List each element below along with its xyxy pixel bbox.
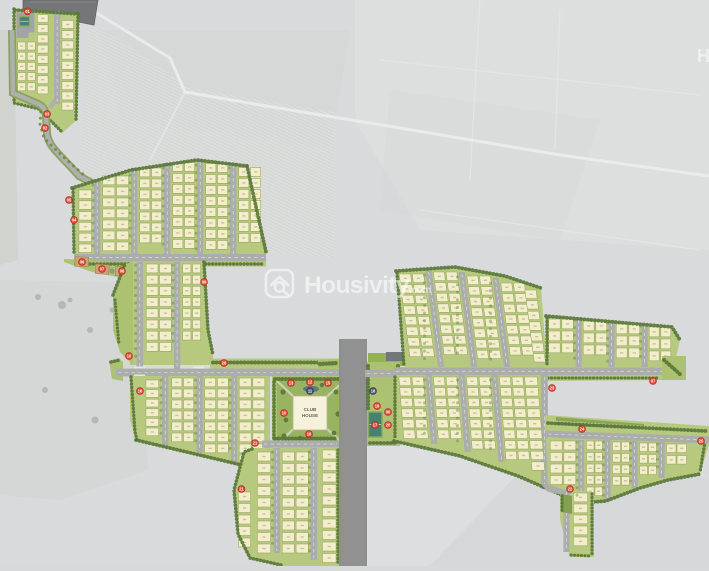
svg-text:H: H: [697, 46, 709, 66]
